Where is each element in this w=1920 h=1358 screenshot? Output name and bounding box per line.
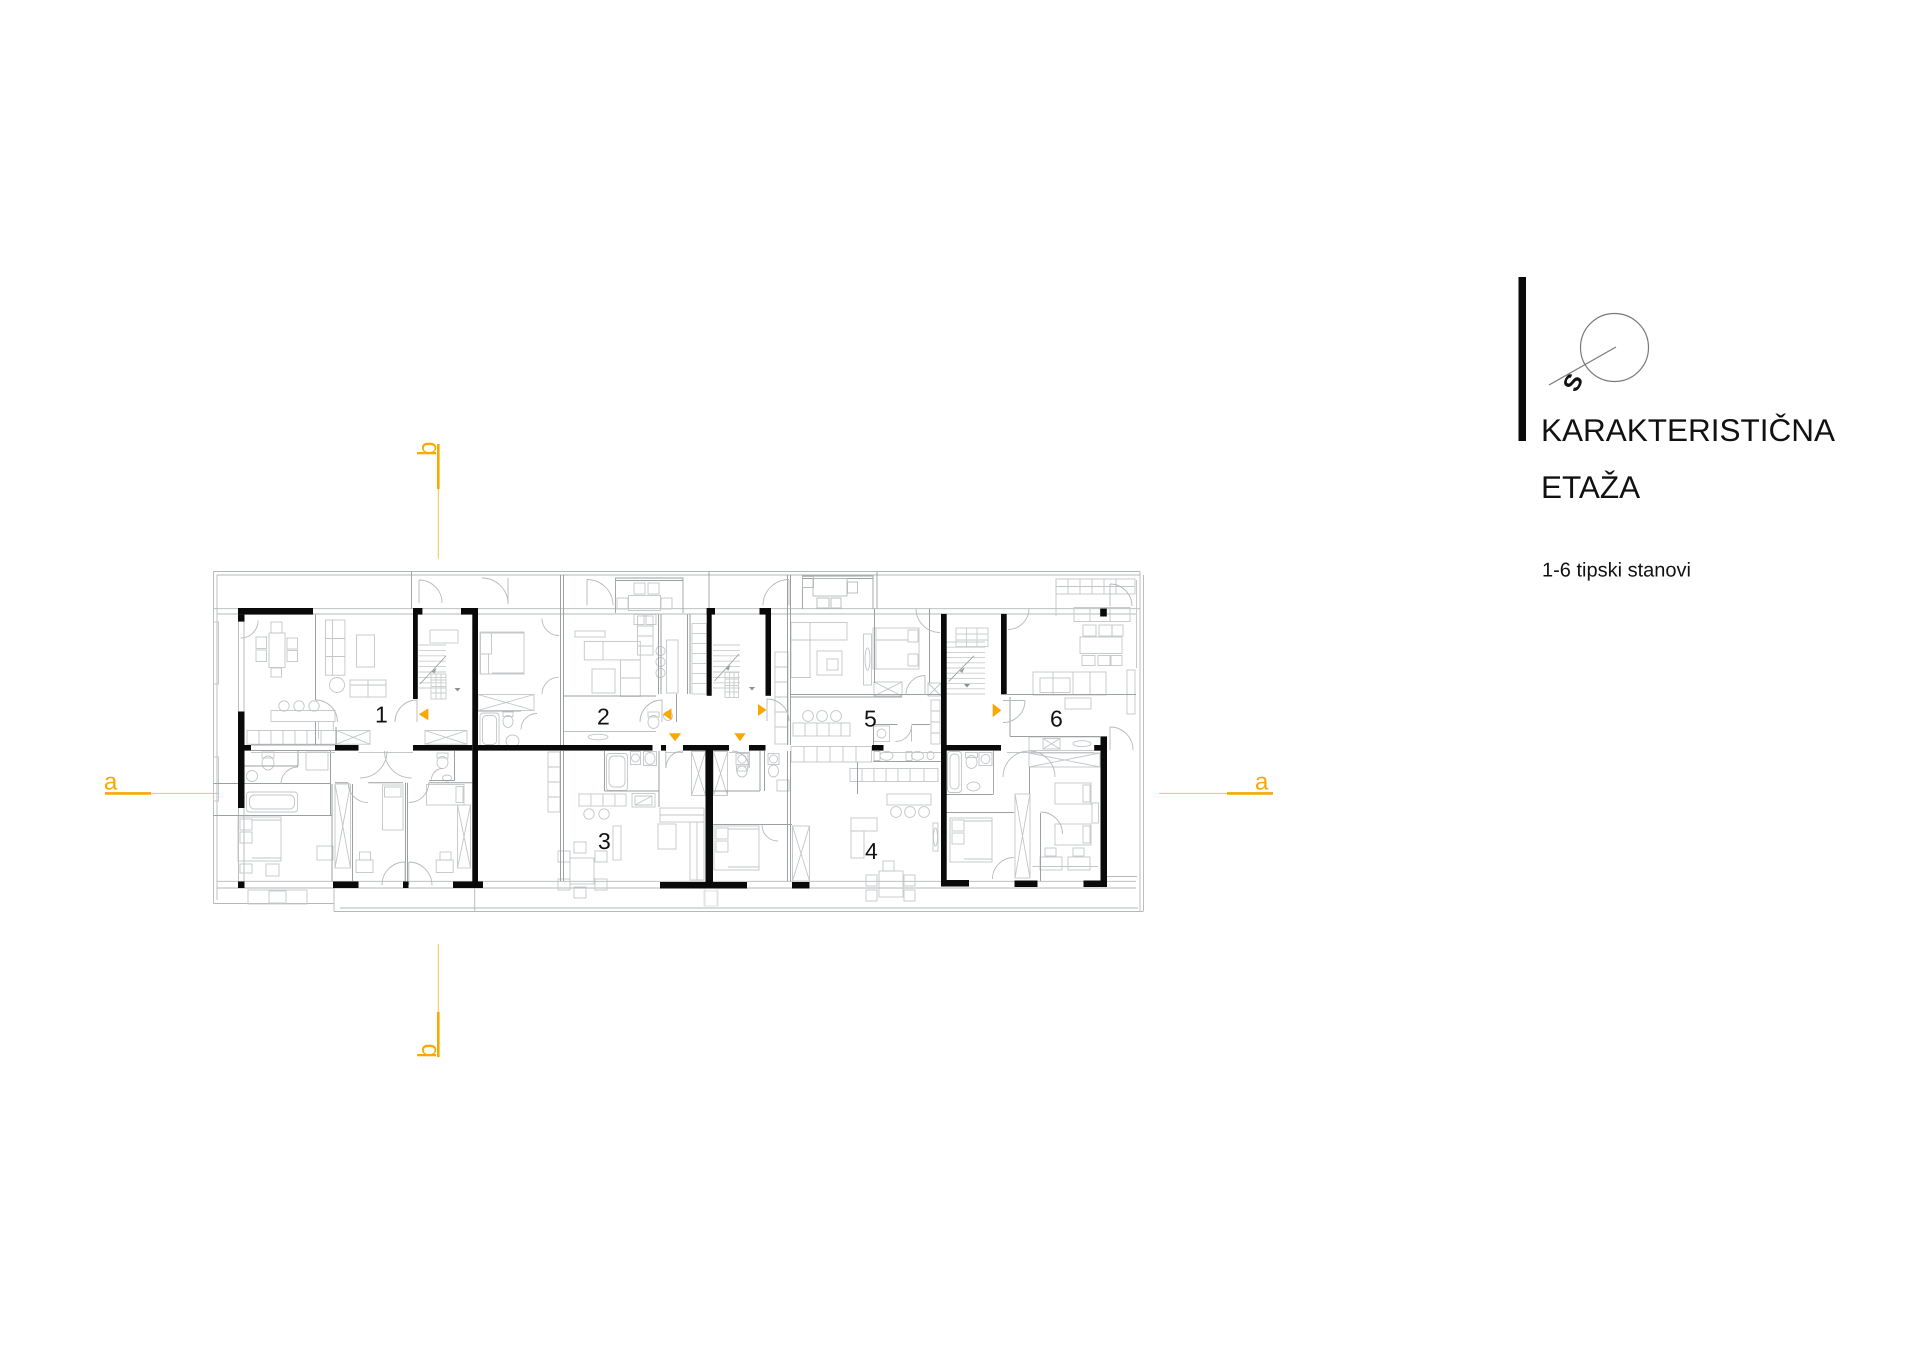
svg-text:1: 1 bbox=[375, 702, 388, 728]
svg-text:4: 4 bbox=[865, 838, 878, 864]
svg-text:KARAKTERISTIČNA: KARAKTERISTIČNA bbox=[1541, 412, 1835, 448]
svg-text:2: 2 bbox=[597, 704, 610, 730]
svg-text:1-6 tipski stanovi: 1-6 tipski stanovi bbox=[1542, 560, 1691, 582]
svg-text:6: 6 bbox=[1050, 706, 1063, 732]
svg-text:a: a bbox=[104, 769, 118, 796]
svg-text:ETAŽA: ETAŽA bbox=[1541, 469, 1640, 505]
svg-text:3: 3 bbox=[598, 828, 611, 854]
svg-text:5: 5 bbox=[864, 706, 877, 732]
svg-text:a: a bbox=[1255, 769, 1269, 796]
